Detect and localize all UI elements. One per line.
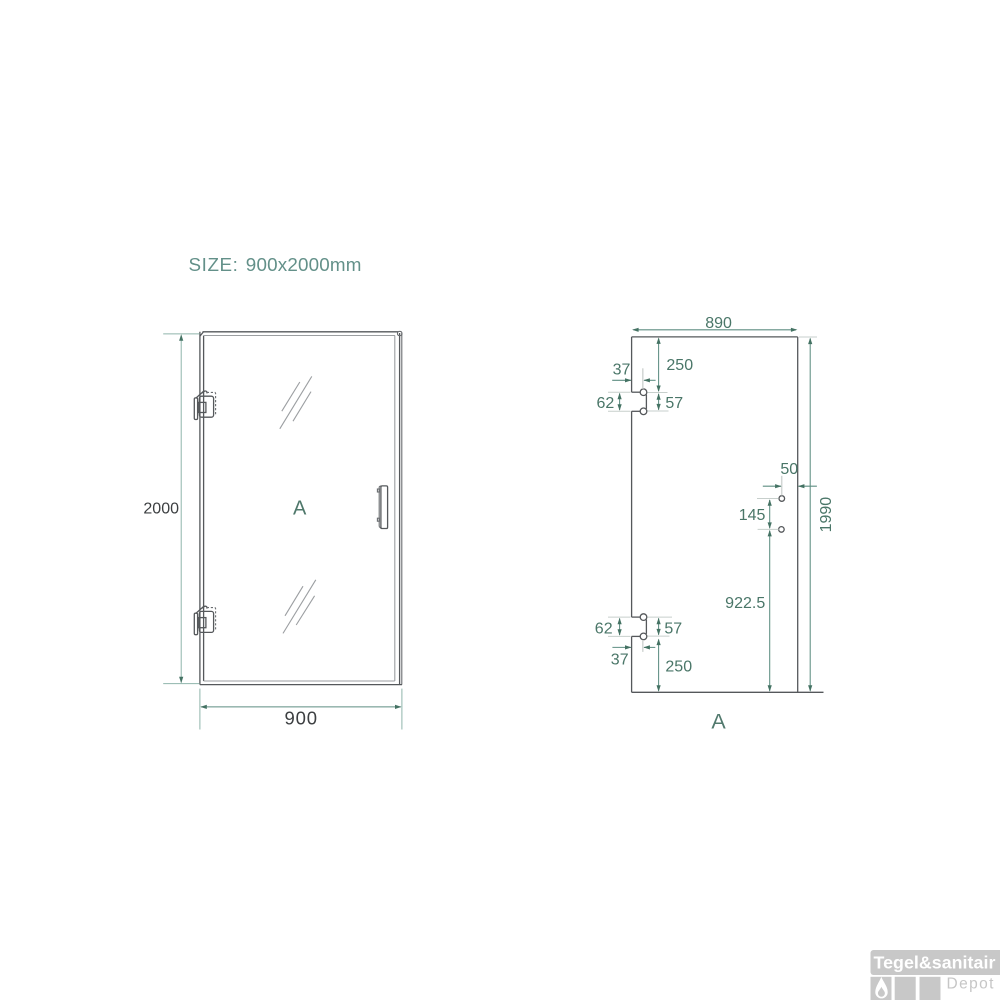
svg-text:250: 250 [666, 357, 693, 374]
svg-text:900: 900 [285, 708, 318, 729]
svg-text:922.5: 922.5 [725, 595, 765, 612]
svg-text:900x2000mm: 900x2000mm [246, 254, 362, 275]
svg-text:2000: 2000 [143, 500, 179, 517]
svg-text:50: 50 [780, 461, 798, 478]
svg-text:145: 145 [739, 507, 766, 524]
svg-text:57: 57 [665, 395, 683, 412]
svg-text:57: 57 [664, 621, 682, 638]
svg-text:1990: 1990 [818, 497, 835, 533]
svg-text:37: 37 [613, 362, 631, 379]
svg-text:37: 37 [611, 652, 629, 669]
svg-text:A: A [293, 498, 307, 520]
svg-text:Tegel&sanitair: Tegel&sanitair [874, 953, 996, 973]
svg-text:Depot: Depot [947, 976, 995, 993]
svg-text:A: A [711, 710, 726, 734]
svg-text:SIZE:: SIZE: [189, 254, 239, 275]
svg-text:250: 250 [665, 658, 692, 675]
svg-text:62: 62 [597, 395, 615, 412]
svg-text:62: 62 [595, 621, 613, 638]
svg-text:890: 890 [705, 315, 732, 332]
